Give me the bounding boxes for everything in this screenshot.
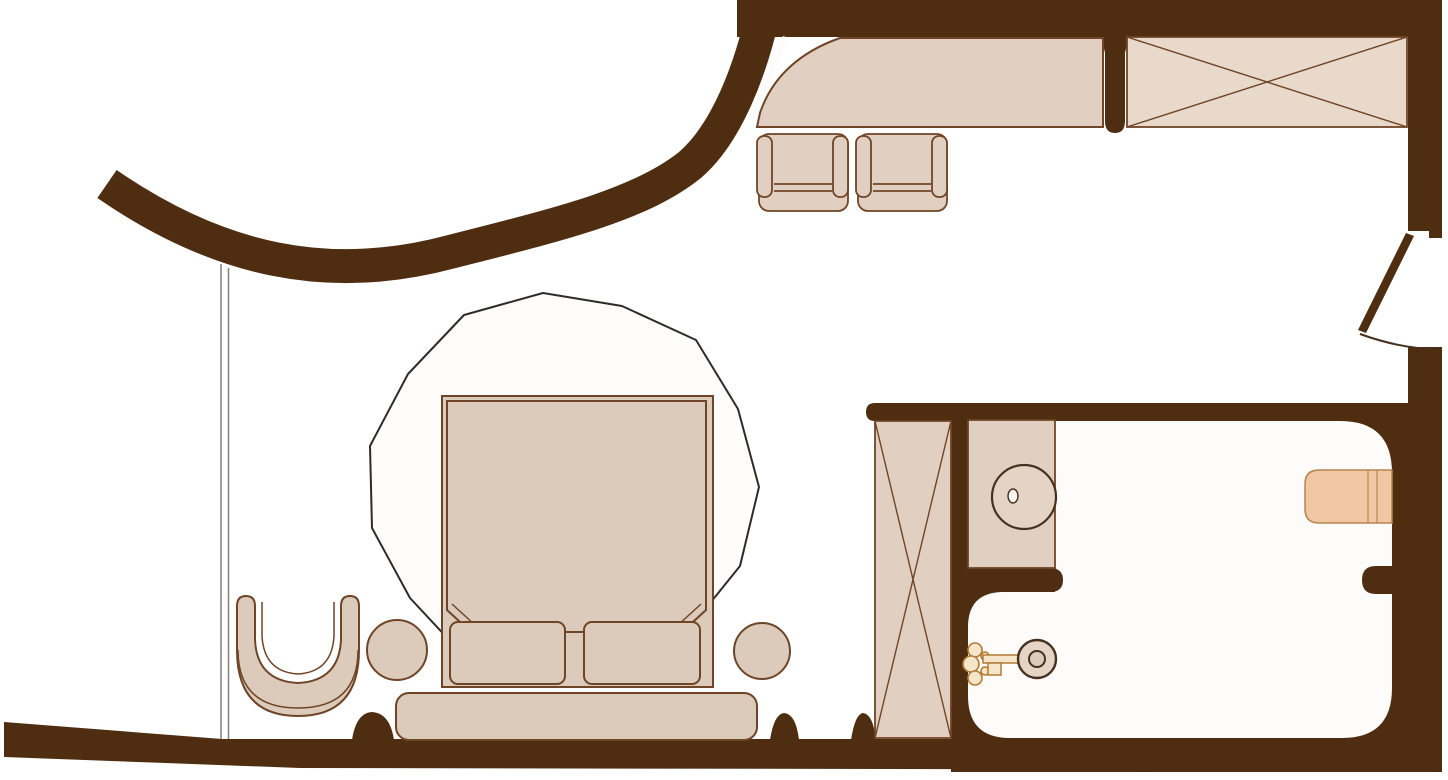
double-bed	[442, 396, 713, 687]
chair-arm-right	[833, 136, 848, 197]
door-jamb-wall	[1408, 347, 1442, 412]
towel-radiator	[1305, 470, 1392, 523]
key-head-inner	[1029, 651, 1045, 667]
console-desk	[757, 38, 1103, 127]
duvet	[447, 401, 706, 632]
right-wall-upper	[1408, 37, 1442, 238]
armchair-body	[237, 596, 359, 716]
armchair	[237, 596, 359, 716]
chair-arm-left	[856, 136, 871, 197]
floor-plan-drawing	[0, 0, 1448, 780]
pillow-left	[450, 622, 565, 684]
key-bit	[988, 663, 1001, 675]
radiator-body	[1305, 470, 1392, 523]
key-bow-curl-mid	[963, 656, 979, 672]
partition-stub	[951, 568, 1063, 592]
top-wall	[737, 0, 1442, 37]
wall-pier-bump-left	[352, 712, 394, 740]
key-bow-curl-bottom	[968, 671, 982, 685]
wall-pier-bump-right	[851, 713, 876, 740]
chair-arm-left	[757, 136, 772, 197]
side-table-right	[734, 623, 790, 679]
window-wall	[221, 264, 229, 739]
pillow-right	[584, 622, 700, 684]
right-wall-knob	[1362, 566, 1392, 594]
side-table-left	[367, 620, 427, 680]
door-swing-arc	[1360, 334, 1436, 349]
sink-drain	[1008, 489, 1018, 503]
desk-chair-left	[757, 134, 848, 211]
desk-chair-right	[856, 134, 947, 211]
wall-pier-bump-middle	[770, 713, 799, 740]
shower-cabinet	[875, 421, 951, 738]
desk-wardrobe-pier	[1105, 37, 1125, 133]
curved-entry-wall	[107, 0, 766, 266]
armchair-inner-line	[262, 602, 334, 674]
sink-basin	[992, 465, 1056, 529]
wardrobe	[1127, 37, 1407, 127]
bathroom-top-wall	[866, 403, 1442, 421]
floor-plan-canvas	[0, 0, 1448, 780]
chair-arm-right	[932, 136, 947, 197]
foot-bench	[396, 693, 757, 740]
key-bow-curl-top	[968, 643, 982, 657]
door-leaf	[1358, 233, 1414, 333]
